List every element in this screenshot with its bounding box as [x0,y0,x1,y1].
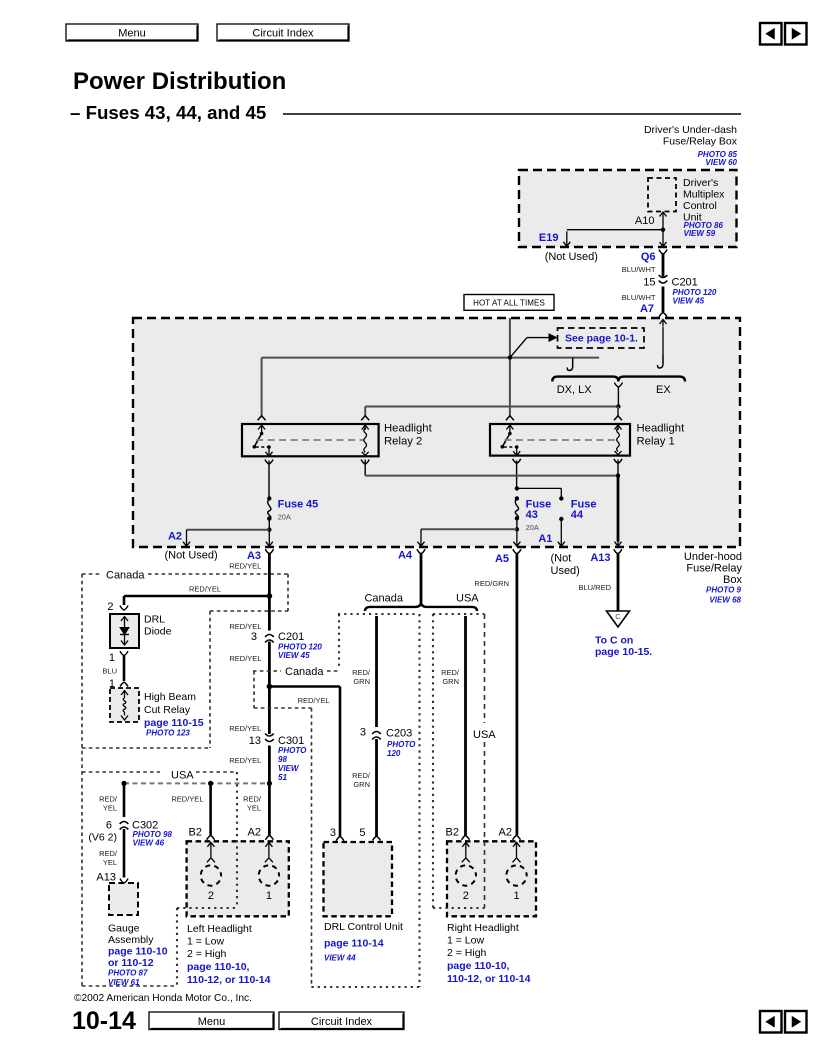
svg-text:GRN: GRN [442,677,459,686]
svg-text:– Fuses 43, 44, and 45: – Fuses 43, 44, and 45 [70,102,266,123]
svg-text:Circuit Index: Circuit Index [252,28,314,40]
svg-text:BLU/WHT: BLU/WHT [622,265,656,274]
svg-text:GRN: GRN [353,780,370,789]
svg-text:2 = High: 2 = High [187,948,227,960]
svg-text:See page 10-1.: See page 10-1. [565,333,638,345]
svg-text:Fuse/Relay: Fuse/Relay [686,563,742,575]
svg-text:(Not Used): (Not Used) [545,251,598,263]
svg-text:1 = Low: 1 = Low [187,936,224,948]
svg-text:page 110-15: page 110-15 [144,717,204,729]
svg-text:15: 15 [643,277,655,289]
svg-text:Fuse/Relay Box: Fuse/Relay Box [663,136,738,148]
svg-text:RED/YEL: RED/YEL [229,562,261,571]
svg-text:2: 2 [208,890,214,902]
svg-text:Headlight: Headlight [637,423,686,435]
svg-text:110-12, or 110-14: 110-12, or 110-14 [187,974,271,986]
svg-text:5: 5 [359,827,365,839]
svg-text:EX: EX [656,384,671,396]
svg-text:©2002 American Honda Motor Co.: ©2002 American Honda Motor Co., Inc. [74,993,252,1004]
svg-text:YEL: YEL [103,858,117,867]
svg-text:Canada: Canada [285,666,324,678]
svg-text:13: 13 [249,735,261,747]
svg-text:RED/: RED/ [352,771,371,780]
svg-text:1: 1 [109,652,115,664]
svg-text:A4: A4 [398,550,413,562]
svg-text:DX, LX: DX, LX [557,384,593,396]
svg-text:To C on: To C on [595,635,633,647]
svg-text:45: 45 [306,499,318,511]
svg-text:RED/: RED/ [99,849,118,858]
svg-text:A3: A3 [247,550,261,562]
svg-text:PHOTO: PHOTO [278,746,307,755]
svg-text:VIEW 60: VIEW 60 [705,158,737,167]
svg-text:Left Headlight: Left Headlight [187,923,252,935]
svg-text:VIEW 45: VIEW 45 [673,297,705,306]
svg-text:Canada: Canada [364,593,403,605]
svg-text:Driver's Under-dash: Driver's Under-dash [644,124,737,136]
svg-text:A2: A2 [168,531,182,543]
svg-text:Right Headlight: Right Headlight [447,922,519,934]
svg-text:Assembly: Assembly [108,934,154,946]
svg-text:BLU: BLU [102,667,117,676]
svg-text:Driver's: Driver's [683,177,718,189]
svg-text:VIEW 46: VIEW 46 [133,839,165,848]
svg-text:RED/YEL: RED/YEL [171,795,203,804]
svg-text:RED/: RED/ [243,795,262,804]
svg-text:Cut Relay: Cut Relay [144,704,191,716]
svg-text:20A: 20A [526,523,539,532]
svg-text:HOT AT ALL TIMES: HOT AT ALL TIMES [473,299,545,308]
svg-text:(Not: (Not [551,553,572,565]
svg-text:Box: Box [723,574,742,586]
svg-text:1 = Low: 1 = Low [447,935,484,947]
svg-text:page 10-15.: page 10-15. [595,646,652,658]
svg-text:1: 1 [513,890,519,902]
svg-text:RED/: RED/ [99,795,118,804]
svg-text:RED/YEL: RED/YEL [229,724,261,733]
svg-text:page 110-10: page 110-10 [108,946,168,958]
svg-text:20A: 20A [278,513,291,522]
svg-text:B2: B2 [189,827,202,839]
svg-text:BLU/WHT: BLU/WHT [622,293,656,302]
svg-text:VIEW 44: VIEW 44 [324,954,356,963]
svg-text:Circuit Index: Circuit Index [311,1016,373,1028]
svg-text:YEL: YEL [103,804,117,813]
svg-text:DRL: DRL [144,614,165,626]
svg-text:44: 44 [571,509,584,521]
svg-text:Used): Used) [551,565,580,577]
svg-text:RED/: RED/ [352,668,371,677]
svg-text:page 110-14: page 110-14 [324,938,384,950]
svg-text:C: C [615,612,621,621]
svg-text:RED/YEL: RED/YEL [229,622,261,631]
svg-text:RED/YEL: RED/YEL [298,696,330,705]
svg-text:Headlight: Headlight [384,423,433,435]
svg-text:PHOTO 87: PHOTO 87 [108,969,148,978]
svg-text:Canada: Canada [106,570,145,582]
svg-text:Relay 2: Relay 2 [384,436,422,448]
svg-text:Diode: Diode [144,626,172,638]
svg-text:High Beam: High Beam [144,691,196,703]
svg-text:1: 1 [266,890,272,902]
svg-text:Under-hood: Under-hood [684,551,742,563]
svg-text:E19: E19 [539,232,559,244]
svg-text:Power Distribution: Power Distribution [73,68,286,95]
svg-text:VIEW 59: VIEW 59 [684,229,716,238]
svg-text:2 = High: 2 = High [447,947,487,959]
svg-text:USA: USA [473,729,496,741]
svg-text:PHOTO 123: PHOTO 123 [146,729,190,738]
svg-text:GRN: GRN [353,677,370,686]
svg-text:C201: C201 [672,277,698,289]
svg-text:Q6: Q6 [641,251,656,263]
svg-text:RED/YEL: RED/YEL [229,756,261,765]
svg-text:A10: A10 [635,215,655,227]
svg-text:PHOTO 9: PHOTO 9 [706,586,742,595]
svg-text:(Not Used): (Not Used) [165,550,218,562]
svg-text:Menu: Menu [198,1016,226,1028]
svg-text:120: 120 [387,749,401,758]
svg-text:BLU/RED: BLU/RED [578,583,611,592]
svg-text:3: 3 [251,631,257,643]
svg-text:page 110-10,: page 110-10, [447,960,510,972]
svg-text:3: 3 [330,827,336,839]
svg-text:or 110-12: or 110-12 [108,957,154,969]
svg-text:RED/GRN: RED/GRN [474,579,509,588]
svg-text:DRL Control Unit: DRL Control Unit [324,921,403,933]
svg-text:Fuse: Fuse [278,499,304,511]
svg-text:51: 51 [278,773,287,782]
svg-text:43: 43 [526,509,538,521]
svg-text:PHOTO: PHOTO [387,740,416,749]
svg-text:6: 6 [106,820,112,832]
svg-text:10-14: 10-14 [72,1007,136,1035]
svg-text:2: 2 [107,601,113,613]
svg-text:Relay 1: Relay 1 [637,436,675,448]
svg-text:A1: A1 [538,533,552,545]
svg-text:RED/YEL: RED/YEL [189,585,221,594]
svg-text:2: 2 [463,890,469,902]
svg-text:YEL: YEL [247,804,261,813]
svg-text:(V6 2): (V6 2) [88,832,117,844]
svg-text:A13: A13 [590,552,610,564]
svg-text:USA: USA [171,770,194,782]
svg-text:3: 3 [360,727,366,739]
svg-text:110-12, or 110-14: 110-12, or 110-14 [447,973,531,985]
svg-text:VIEW 68: VIEW 68 [709,596,741,605]
svg-text:Control: Control [683,200,717,212]
svg-text:Menu: Menu [118,28,146,40]
svg-text:page 110-10,: page 110-10, [187,961,250,973]
svg-text:A5: A5 [495,553,509,565]
svg-text:VIEW: VIEW [278,764,300,773]
svg-text:RED/: RED/ [441,668,460,677]
svg-text:98: 98 [278,755,287,764]
svg-text:A2: A2 [248,827,261,839]
svg-text:USA: USA [456,593,479,605]
svg-text:Gauge: Gauge [108,923,140,935]
svg-text:B2: B2 [446,827,459,839]
svg-text:A7: A7 [640,303,654,315]
svg-text:C203: C203 [386,728,412,740]
svg-text:RED/YEL: RED/YEL [229,654,261,663]
svg-text:Multiplex: Multiplex [683,189,725,201]
svg-text:A2: A2 [499,827,512,839]
svg-text:VIEW 45: VIEW 45 [278,651,310,660]
svg-text:A13: A13 [96,872,116,884]
svg-text:C201: C201 [278,631,304,643]
